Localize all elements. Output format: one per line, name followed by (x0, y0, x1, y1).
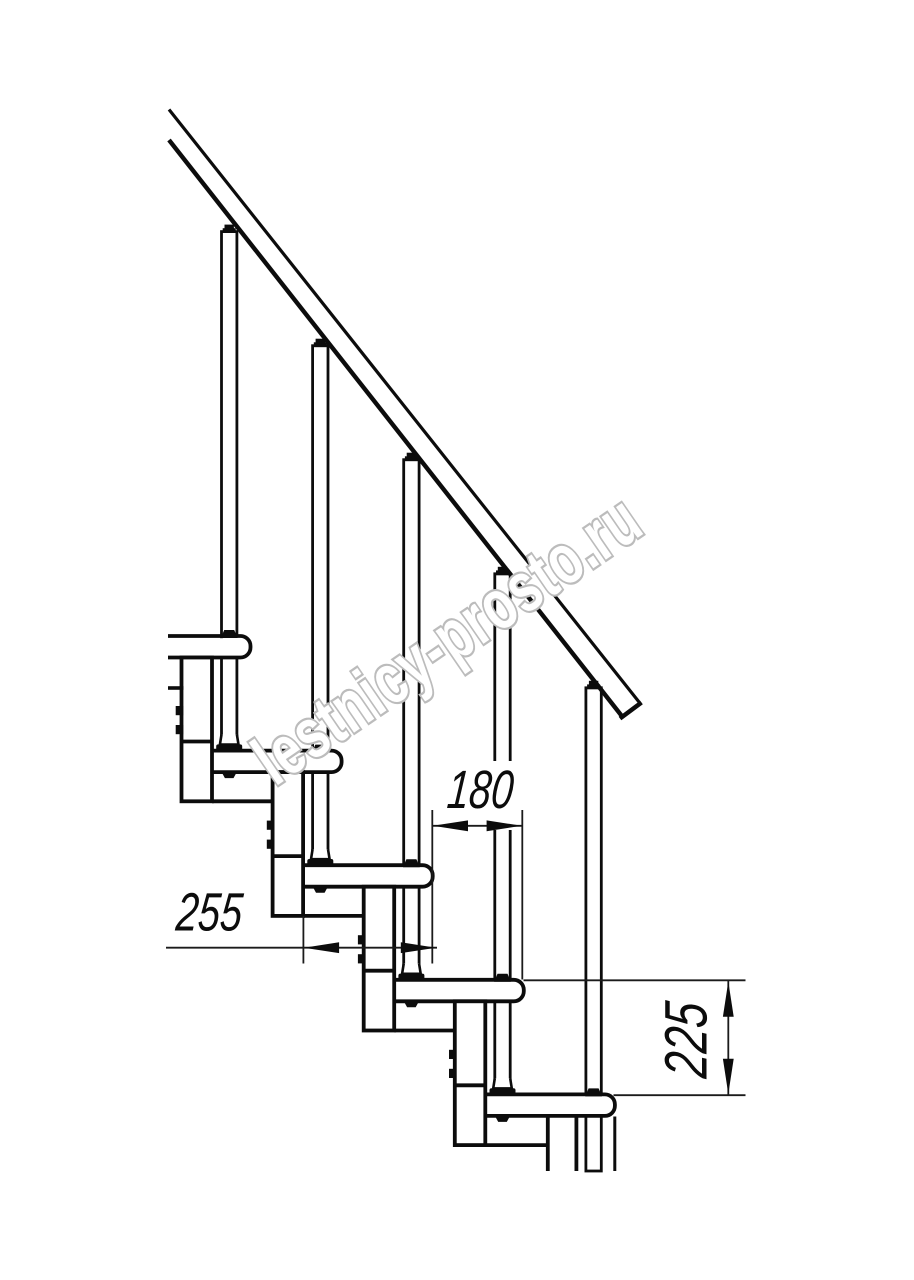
svg-text:255: 255 (173, 883, 246, 943)
svg-text:225: 225 (653, 998, 720, 1080)
svg-text:180: 180 (445, 760, 516, 820)
